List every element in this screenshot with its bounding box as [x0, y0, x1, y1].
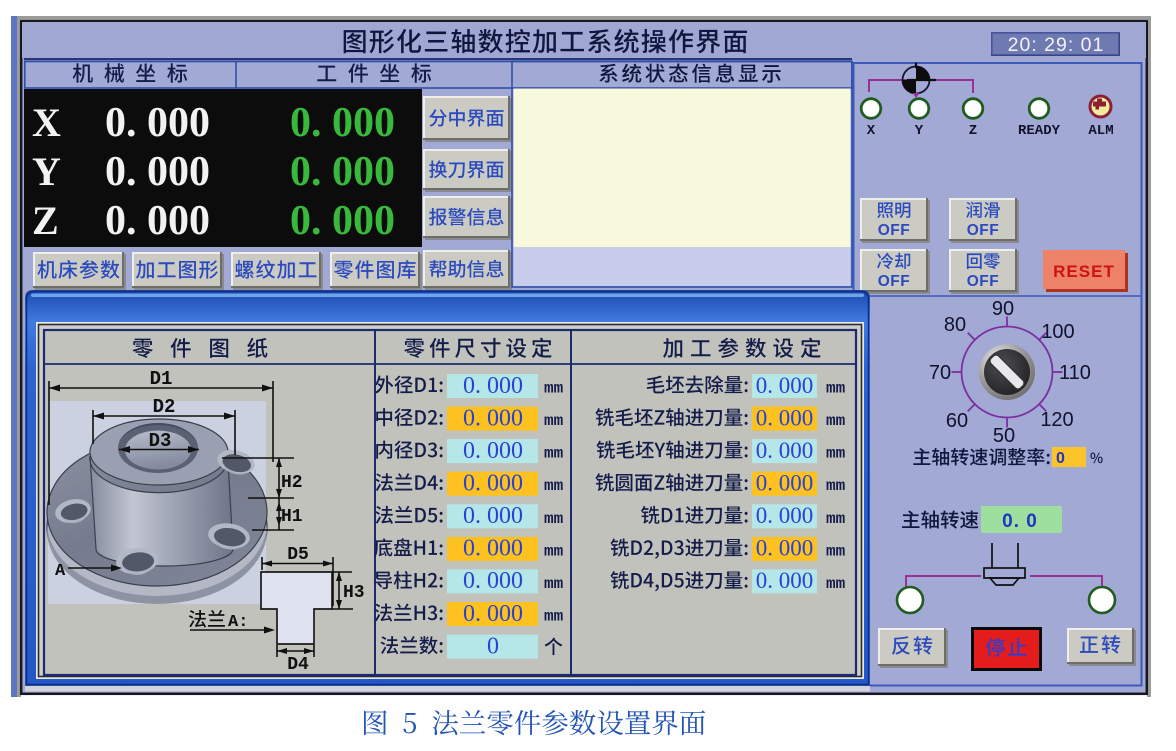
svg-text:mm: mm [544, 380, 564, 398]
svg-text:0. 000: 0. 000 [463, 471, 523, 497]
svg-text:0. 000: 0. 000 [290, 198, 395, 244]
svg-text:mm: mm [826, 510, 846, 528]
svg-text:0. 000: 0. 000 [756, 373, 814, 398]
svg-text:110: 110 [1059, 362, 1091, 384]
svg-text:H2: H2 [281, 473, 303, 493]
svg-text:READY: READY [1018, 123, 1061, 139]
svg-text:mm: mm [544, 542, 564, 560]
svg-text:0. 000: 0. 000 [463, 568, 523, 594]
svg-text:90: 90 [992, 298, 1014, 320]
svg-text:D1: D1 [150, 368, 173, 390]
svg-text:mm: mm [544, 608, 564, 626]
svg-text:80: 80 [944, 314, 966, 336]
svg-text:0. 000: 0. 000 [463, 503, 523, 529]
svg-text:H3: H3 [343, 583, 365, 603]
svg-text:0. 000: 0. 000 [463, 601, 523, 627]
svg-text:X: X [867, 123, 876, 139]
svg-text:mm: mm [826, 575, 846, 593]
svg-text:D2: D2 [153, 396, 176, 418]
svg-text:60: 60 [946, 410, 968, 432]
svg-text:20: 29: 01: 20: 29: 01 [1008, 34, 1105, 56]
svg-text:Y: Y [32, 149, 61, 194]
svg-text:0: 0 [1056, 450, 1065, 467]
svg-text:0. 000: 0. 000 [463, 536, 523, 562]
svg-text:mm: mm [826, 477, 846, 495]
svg-text:0. 000: 0. 000 [105, 198, 210, 244]
svg-text:D5: D5 [287, 545, 309, 565]
svg-text:D3: D3 [149, 430, 172, 452]
svg-text:mm: mm [544, 445, 564, 463]
svg-text:Y: Y [915, 123, 924, 139]
svg-text:Z: Z [969, 123, 977, 139]
svg-text:ALM: ALM [1088, 123, 1113, 139]
svg-text:0: 0 [487, 633, 499, 659]
svg-text:mm: mm [544, 510, 564, 528]
svg-text:A:: A: [228, 613, 248, 632]
svg-text:H1: H1 [281, 507, 303, 527]
svg-text:mm: mm [826, 380, 846, 398]
svg-text:0. 000: 0. 000 [756, 471, 814, 496]
svg-text:mm: mm [544, 575, 564, 593]
svg-text:RESET: RESET [1053, 262, 1115, 281]
svg-text:0. 0: 0. 0 [1002, 511, 1038, 532]
svg-text:70: 70 [929, 362, 951, 384]
svg-text:mm: mm [544, 477, 564, 495]
svg-text:OFF: OFF [878, 222, 911, 239]
svg-text:OFF: OFF [967, 222, 1000, 239]
svg-text:0. 000: 0. 000 [290, 149, 395, 195]
svg-text:0. 000: 0. 000 [105, 100, 210, 146]
svg-text:mm: mm [826, 542, 846, 560]
svg-text:Z: Z [32, 198, 59, 243]
svg-text:OFF: OFF [967, 273, 1000, 290]
svg-text:mm: mm [826, 445, 846, 463]
svg-text:D4: D4 [287, 655, 309, 675]
svg-text:0. 000: 0. 000 [756, 568, 814, 593]
svg-text:mm: mm [544, 412, 564, 430]
svg-text:0. 000: 0. 000 [756, 536, 814, 561]
svg-text:0. 000: 0. 000 [756, 405, 814, 430]
svg-text:120: 120 [1040, 409, 1073, 431]
svg-text:0. 000: 0. 000 [463, 405, 523, 431]
svg-text:OFF: OFF [878, 273, 911, 290]
svg-text:0. 000: 0. 000 [756, 503, 814, 528]
svg-text:50: 50 [993, 425, 1015, 447]
svg-text:0. 000: 0. 000 [463, 373, 523, 399]
svg-text:mm: mm [826, 412, 846, 430]
svg-text:X: X [32, 100, 61, 145]
svg-text:0. 000: 0. 000 [290, 100, 395, 146]
svg-text:0. 000: 0. 000 [463, 438, 523, 464]
svg-text:A: A [55, 562, 66, 581]
svg-text:0. 000: 0. 000 [756, 438, 814, 463]
svg-text:0. 000: 0. 000 [105, 149, 210, 195]
svg-text:100: 100 [1041, 321, 1074, 343]
